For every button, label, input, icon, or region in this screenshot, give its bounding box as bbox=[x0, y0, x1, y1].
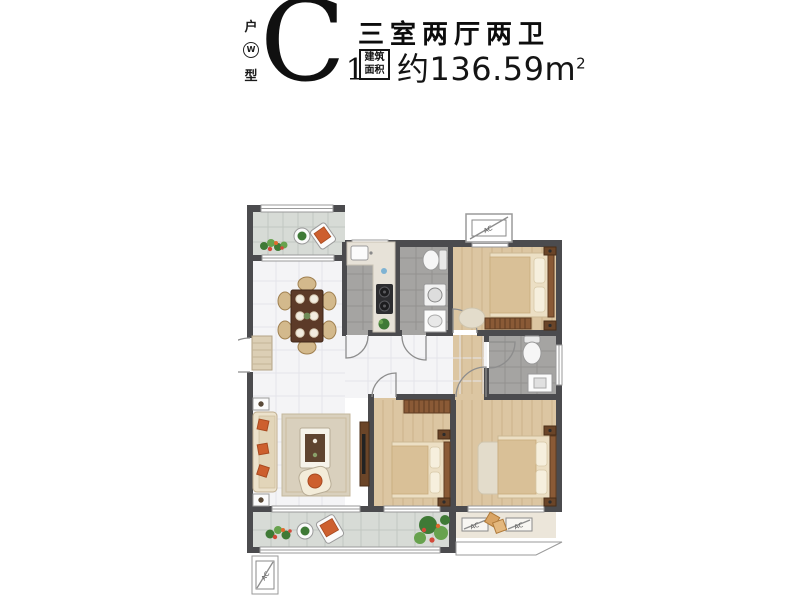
unit-type-char-top: 户 bbox=[244, 16, 257, 35]
bathroom1-fixtures bbox=[423, 250, 447, 332]
tv bbox=[362, 434, 366, 474]
kitchen-dish bbox=[381, 268, 387, 274]
brand-logo-icon: W bbox=[243, 42, 259, 58]
ac-box-north: AC bbox=[466, 214, 512, 242]
toilet-bowl bbox=[523, 342, 541, 364]
bedroom1-rug bbox=[459, 308, 485, 328]
unit-code: C1 bbox=[260, 0, 365, 98]
toilet-bowl bbox=[423, 250, 439, 270]
area-superscript: 2 bbox=[576, 54, 586, 72]
area-tag-line1: 建筑 bbox=[365, 52, 385, 65]
parapet-outline bbox=[456, 542, 562, 555]
area-value: 约136.59m2 bbox=[397, 44, 586, 90]
entry-door-arc bbox=[238, 338, 250, 372]
shoe-cabinet bbox=[252, 336, 272, 370]
kitchen-sink bbox=[351, 246, 368, 260]
area-number: 约136.59m bbox=[397, 50, 576, 88]
unit-type-char-bottom: 型 bbox=[244, 65, 257, 84]
bedroom1-headboard bbox=[548, 253, 554, 317]
area-tag-line2: 面积 bbox=[365, 65, 385, 78]
master-headboard bbox=[550, 436, 556, 498]
area-row: 建筑 面积 约136.59m2 bbox=[359, 44, 586, 90]
area-tag-box: 建筑 面积 bbox=[359, 49, 390, 80]
balcony-north-table bbox=[294, 228, 310, 244]
bedroom2-wardrobe bbox=[404, 400, 450, 413]
bedroom1-wardrobe bbox=[485, 318, 531, 329]
bedroom2-headboard bbox=[444, 442, 450, 498]
living-room-furniture bbox=[253, 398, 369, 506]
ac-box-west: AC bbox=[252, 556, 278, 594]
toilet-tank bbox=[439, 250, 447, 270]
floorplan-drawing: AC AC AC AC bbox=[238, 196, 572, 600]
unit-type-vertical-label: 户 W 型 bbox=[241, 16, 261, 84]
unit-code-letter: C bbox=[260, 0, 346, 107]
floorplan-page: 户 W 型 C1 三室两厅两卫 建筑 面积 约136.59m2 bbox=[0, 0, 800, 600]
